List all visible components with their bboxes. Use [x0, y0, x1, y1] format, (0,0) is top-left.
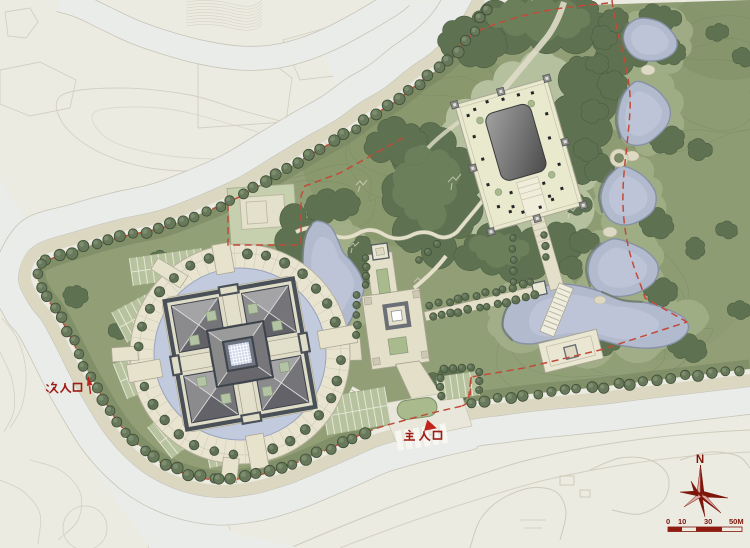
svg-text:30: 30: [704, 517, 712, 526]
svg-text:N: N: [696, 454, 704, 466]
svg-text:50M: 50M: [729, 517, 744, 526]
svg-text:10: 10: [678, 517, 686, 526]
svg-text:0: 0: [666, 517, 670, 526]
